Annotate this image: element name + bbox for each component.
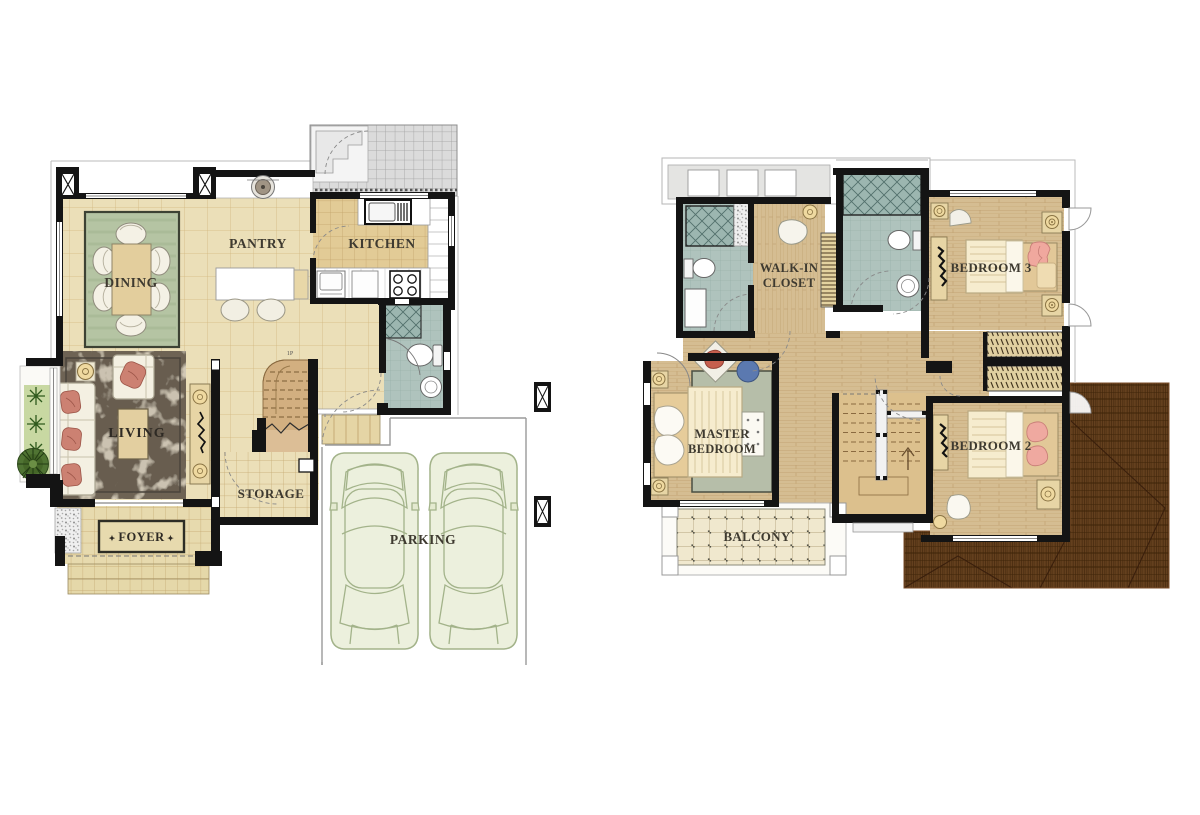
svg-text:BALCONY: BALCONY bbox=[723, 529, 790, 544]
svg-text:BEDROOM 3: BEDROOM 3 bbox=[950, 260, 1031, 275]
svg-text:CLOSET: CLOSET bbox=[763, 276, 816, 290]
svg-text:KITCHEN: KITCHEN bbox=[348, 236, 415, 251]
svg-text:DINING: DINING bbox=[104, 275, 157, 290]
svg-text:PANTRY: PANTRY bbox=[229, 236, 287, 251]
svg-text:BEDROOM 2: BEDROOM 2 bbox=[950, 438, 1031, 453]
svg-text:BEDROOM: BEDROOM bbox=[688, 442, 756, 456]
svg-text:1P: 1P bbox=[287, 351, 294, 357]
svg-text:LIVING: LIVING bbox=[108, 426, 165, 441]
svg-text:PARKING: PARKING bbox=[390, 532, 456, 547]
svg-text:WALK-IN: WALK-IN bbox=[760, 261, 818, 275]
svg-text:✦ FOYER ✦: ✦ FOYER ✦ bbox=[109, 530, 175, 544]
svg-text:STORAGE: STORAGE bbox=[238, 486, 305, 501]
svg-text:MASTER: MASTER bbox=[694, 427, 750, 441]
